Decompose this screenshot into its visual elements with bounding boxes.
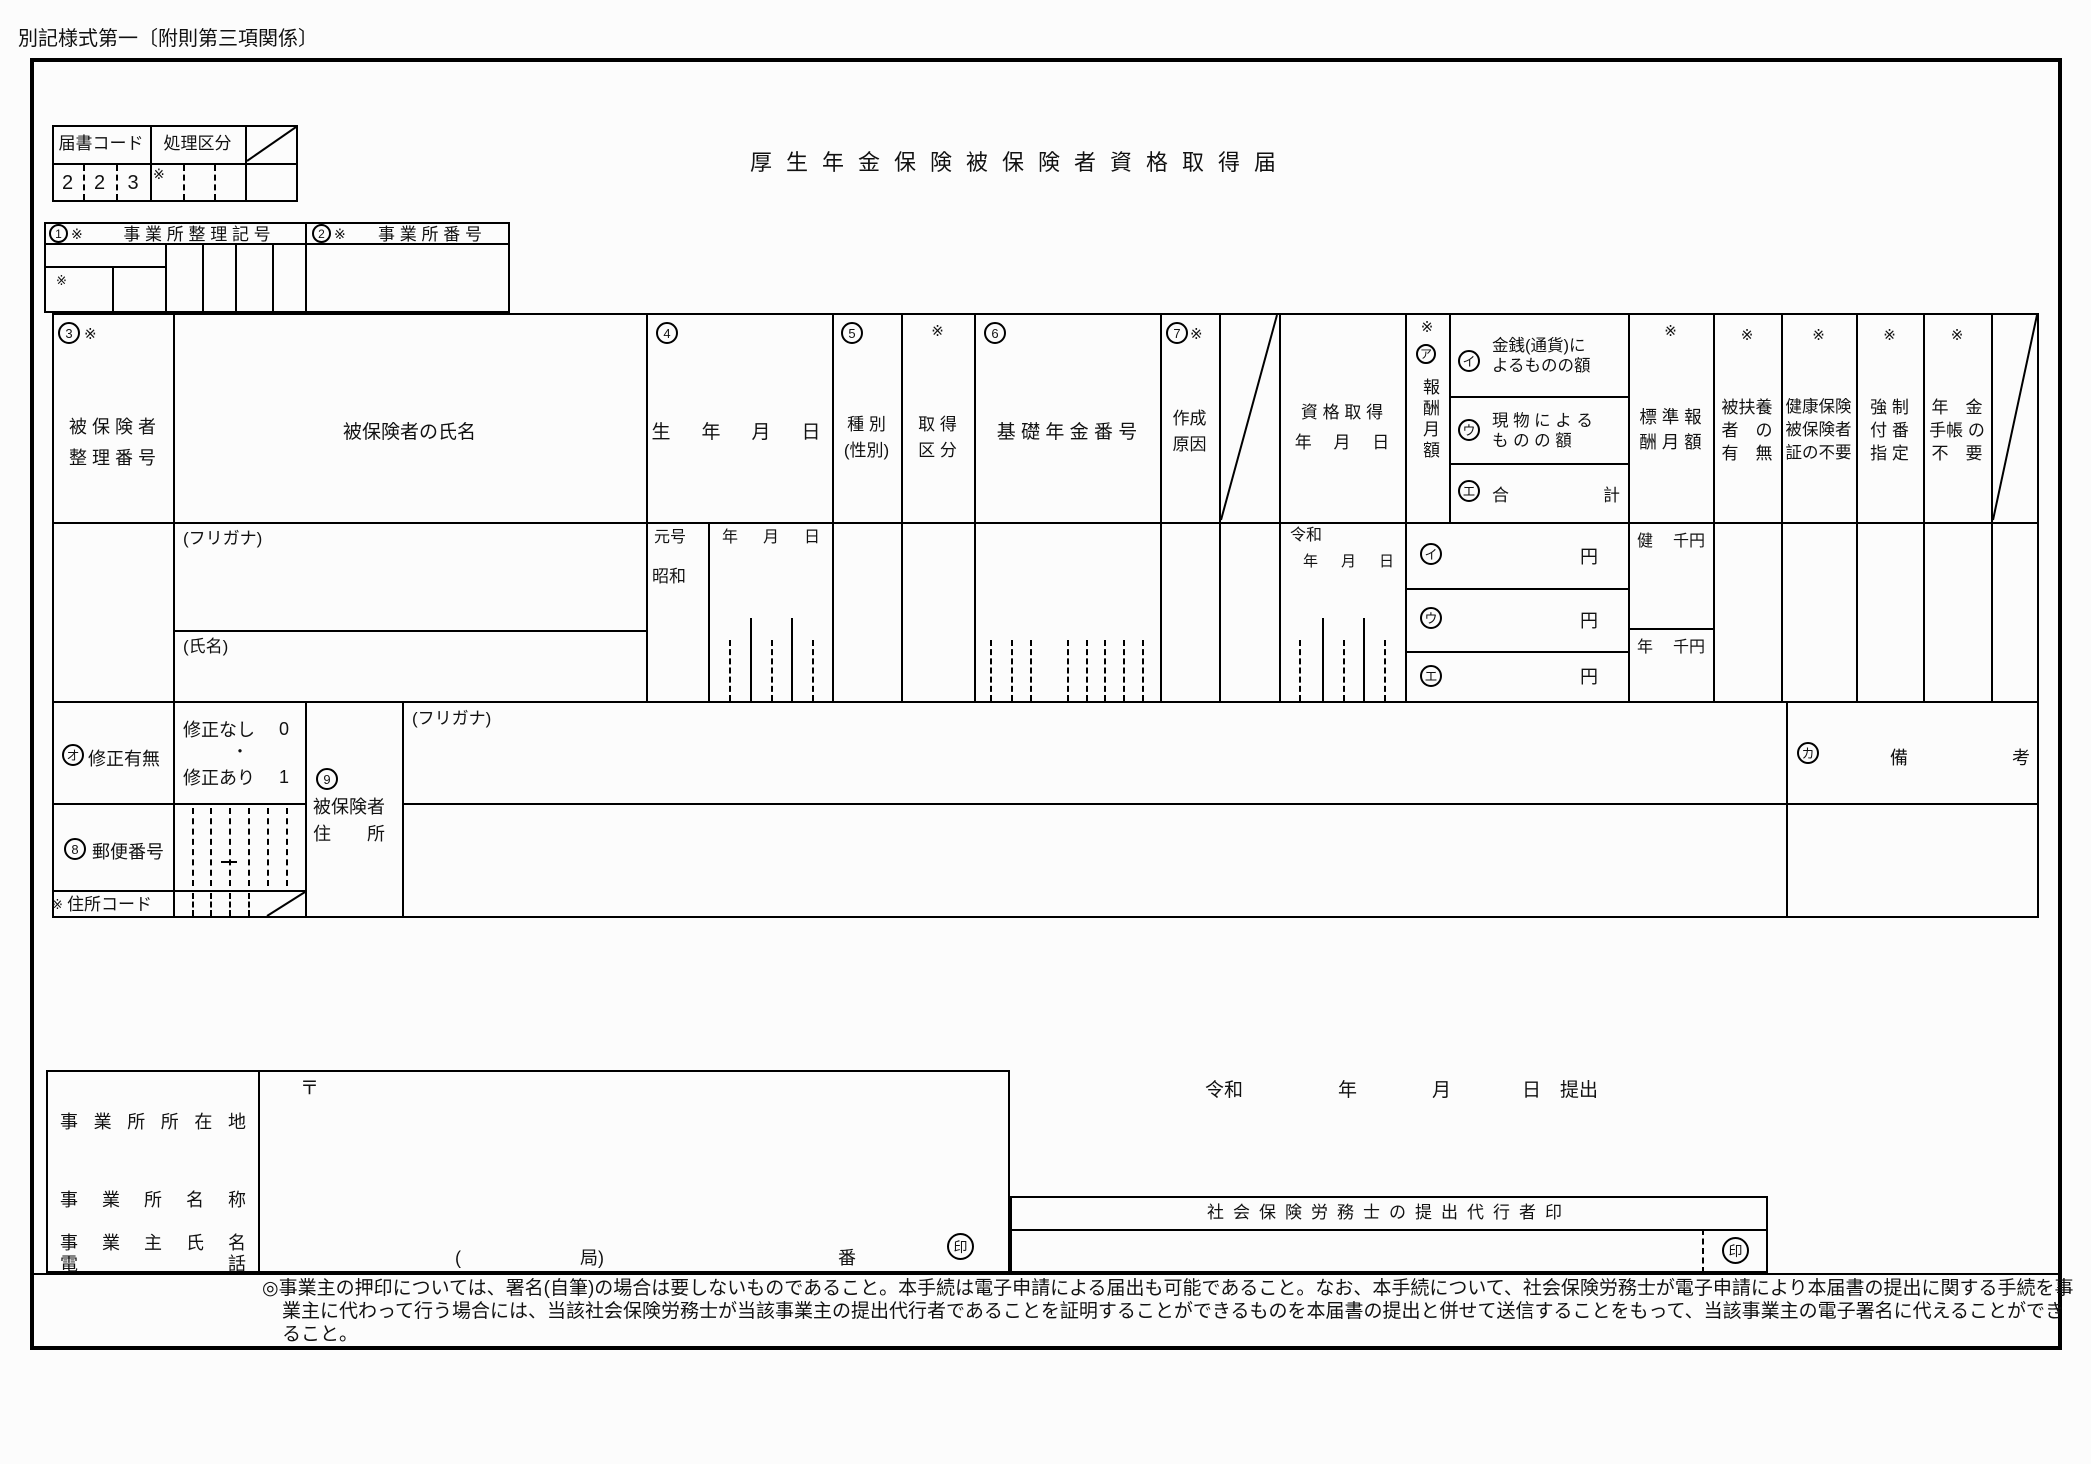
remarks-label-right: 考 bbox=[2012, 744, 2030, 770]
circled-kana-ka: カ bbox=[1797, 742, 1819, 764]
submit-date-entry-area[interactable] bbox=[1205, 1070, 1635, 1110]
circled-num-9: 9 bbox=[316, 768, 338, 790]
circled-kana-a: ア bbox=[1416, 344, 1436, 364]
pay-cash-entry-cell[interactable] bbox=[1405, 522, 1628, 588]
postal-label: 郵便番号 bbox=[92, 840, 164, 864]
circled-kana-o: オ bbox=[62, 744, 84, 766]
create-reason-entry-cell[interactable] bbox=[1160, 522, 1219, 701]
circled-kana-e: エ bbox=[1458, 480, 1480, 502]
diagonal-line bbox=[247, 127, 296, 161]
reference-mark: ※ bbox=[1856, 326, 1923, 346]
office-serial-entry-cell[interactable] bbox=[165, 243, 305, 313]
address-furigana-entry-cell[interactable] bbox=[402, 701, 1786, 803]
grid-line bbox=[305, 701, 307, 918]
address-col-label-2: 住 所 bbox=[313, 822, 385, 846]
circled-num-3: 3 bbox=[58, 322, 80, 344]
pension-book-entry-cell[interactable] bbox=[1923, 522, 1991, 701]
std-health-entry-cell[interactable] bbox=[1628, 522, 1713, 628]
reference-mark: ※ bbox=[1190, 325, 1203, 345]
col-monthly-pay-label: 報酬月額 bbox=[1417, 378, 1440, 462]
reference-mark: ※ bbox=[1405, 318, 1449, 338]
forced-no-entry-cell[interactable] bbox=[1856, 522, 1923, 701]
code-digit: 2 bbox=[52, 170, 83, 197]
grid-line bbox=[1449, 463, 1628, 465]
basic-pension-entry-cell[interactable] bbox=[974, 522, 1160, 701]
address-col-label-1: 被保険者 bbox=[313, 795, 385, 819]
form-page: 別記様式第一〔附則第三項関係〕 厚生年金保険被保険者資格取得届 届書コード 処理… bbox=[0, 0, 2091, 1464]
kind-entry-cell[interactable] bbox=[832, 522, 901, 701]
diagonal-line bbox=[267, 892, 305, 916]
col-name-label: 被保険者の氏名 bbox=[173, 420, 646, 446]
form-style-label: 別記様式第一〔附則第三項関係〕 bbox=[18, 26, 318, 53]
postal-entry-cell[interactable] bbox=[173, 803, 305, 890]
col-pay-total-label: 合 計 bbox=[1492, 481, 1620, 506]
circled-num-4: 4 bbox=[656, 322, 678, 344]
circled-num-5: 5 bbox=[841, 322, 863, 344]
grid-line bbox=[112, 266, 114, 313]
diagonal-line bbox=[1221, 315, 1277, 520]
reference-mark: ※ bbox=[1628, 322, 1713, 342]
sr-seal-entry-cell[interactable] bbox=[1010, 1229, 1702, 1273]
pay-total-entry-cell[interactable] bbox=[1405, 651, 1628, 701]
reference-mark: ※ bbox=[1713, 326, 1781, 346]
fix-selection-cell[interactable] bbox=[173, 701, 305, 803]
acq-class-entry-cell[interactable] bbox=[901, 522, 974, 701]
grid-line bbox=[1449, 396, 1628, 398]
employer-address-label: 事 業 所 所 在 地 bbox=[60, 1108, 246, 1134]
employer-name-label: 事 業 所 名 称 bbox=[60, 1186, 246, 1212]
diagonal-line bbox=[1993, 315, 2037, 520]
hi-card-entry-cell[interactable] bbox=[1781, 522, 1856, 701]
dependents-entry-cell[interactable] bbox=[1713, 522, 1781, 701]
pay-inkind-entry-cell[interactable] bbox=[1405, 588, 1628, 651]
birth-date-entry-cell[interactable] bbox=[646, 522, 832, 701]
remarks-label-left: 備 bbox=[1890, 744, 1908, 770]
reference-mark: ※ bbox=[901, 322, 974, 342]
reference-mark: ※ bbox=[1781, 326, 1856, 346]
grid-line bbox=[34, 1273, 2058, 1275]
circled-kana-u: ウ bbox=[1458, 419, 1480, 441]
std-pension-entry-cell[interactable] bbox=[1628, 628, 1713, 701]
col-std-pay-label: 標 準 報 酬 月 額 bbox=[1628, 405, 1713, 455]
acq-date-entry-cell[interactable] bbox=[1279, 522, 1405, 701]
office-number-entry-cell[interactable] bbox=[305, 243, 510, 313]
reference-mark: ※ bbox=[52, 896, 63, 914]
col-basic-pension-label: 基 礎 年 金 番 号 bbox=[974, 420, 1160, 446]
total-label-left: 合 bbox=[1492, 481, 1509, 506]
reference-mark: ※ bbox=[1923, 326, 1991, 346]
col-acq-date-label: 資 格 取 得 年 月 日 bbox=[1279, 398, 1405, 458]
circled-num-2: 2 bbox=[312, 224, 331, 243]
col-create-reason-label: 作成 原因 bbox=[1160, 406, 1219, 458]
insured-no-entry-cell[interactable] bbox=[52, 522, 173, 701]
name-furigana-entry-cell[interactable] bbox=[173, 522, 646, 630]
col-forced-no-label: 強 制 付 番 指 定 bbox=[1856, 396, 1923, 465]
name-entry-cell[interactable] bbox=[173, 630, 646, 701]
code-digit: 2 bbox=[83, 170, 116, 197]
remarks-label: 備 考 bbox=[1890, 744, 2030, 770]
col-dependents-label: 被扶養 者 の 有 無 bbox=[1713, 396, 1781, 465]
sr-seal-box-title: 社会保険労務士の提出代行者印 bbox=[1010, 1202, 1768, 1225]
col-insured-no-label: 被 保 険 者 整 理 番 号 bbox=[52, 412, 173, 474]
code-digit: 3 bbox=[116, 170, 150, 197]
dashed-guide bbox=[1702, 1229, 1704, 1273]
total-label-right: 計 bbox=[1603, 481, 1620, 506]
col-pay-inkind-label: 現 物 に よ る も の の 額 bbox=[1492, 411, 1593, 451]
circled-num-7: 7 bbox=[1166, 322, 1188, 344]
form-title: 厚生年金保険被保険者資格取得届 bbox=[620, 148, 1420, 178]
reference-mark: ※ bbox=[56, 272, 67, 290]
address-entry-cell[interactable] bbox=[402, 803, 1786, 918]
reference-mark: ※ bbox=[71, 225, 83, 244]
col-hi-card-label: 健康保険 被保険者 証の不要 bbox=[1781, 396, 1856, 465]
seal-mark-icon: 印 bbox=[1722, 1237, 1749, 1264]
reference-mark: ※ bbox=[84, 325, 97, 345]
fix-label: 修正有無 bbox=[88, 747, 160, 771]
circled-kana-i: イ bbox=[1458, 350, 1480, 372]
grid-line bbox=[44, 266, 165, 268]
col-pay-cash-label: 金銭(通貨)に よるものの額 bbox=[1492, 336, 1591, 376]
col-pension-book-label: 年 金 手帳 の 不 要 bbox=[1923, 396, 1991, 465]
remarks-entry-cell[interactable] bbox=[1786, 803, 2039, 918]
grid-line bbox=[1449, 313, 1451, 522]
code-box-header-1: 届書コード bbox=[54, 133, 148, 156]
col-birth-label: 生 年 月 日 bbox=[646, 420, 832, 446]
address-code-entry-cell[interactable] bbox=[173, 890, 267, 918]
employer-entry-cell[interactable] bbox=[258, 1070, 1010, 1273]
col-acq-class-label: 取 得 区 分 bbox=[901, 412, 974, 464]
code-box-header-2: 処理区分 bbox=[152, 133, 243, 156]
circled-num-8: 8 bbox=[64, 838, 86, 860]
reference-mark: ※ bbox=[334, 225, 346, 244]
address-code-label: 住所コード bbox=[67, 894, 152, 917]
col-kind-label: 種 別 (性別) bbox=[832, 412, 901, 464]
processing-class-entry-cell[interactable] bbox=[152, 165, 243, 200]
circled-num-6: 6 bbox=[984, 322, 1006, 344]
footnote: ◎事業主の押印については、署名(自筆)の場合は要しないものであること。本手続は電… bbox=[262, 1277, 2076, 1346]
circled-num-1: 1 bbox=[49, 224, 68, 243]
